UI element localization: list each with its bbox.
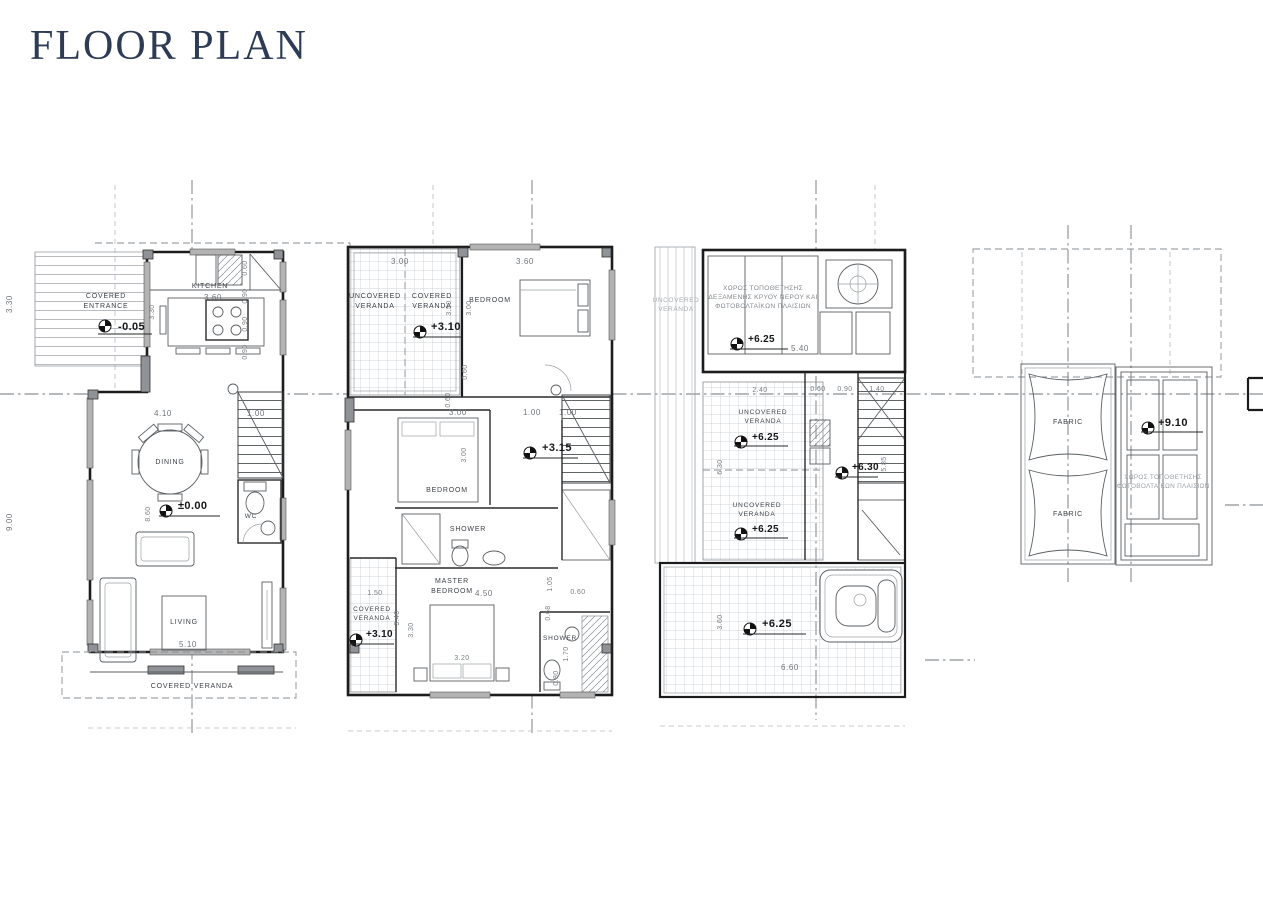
floor-plan-drawing: COVERED ENTRANCE -0.05 KITCHEN 3.60 3.30… [0, 0, 1263, 897]
dim-1-50: 1.50 [367, 590, 382, 597]
level-veranda-top: +3.10 [431, 321, 461, 333]
dim-1-00-a: 1.00 [523, 408, 541, 417]
dim-0-80: 0.80 [553, 670, 560, 685]
dim-0-60-b: 0.60 [445, 392, 452, 407]
label-pv-greek-2: ΦΩΤΟΒΟΛΤΑΪΚΩΝ ΠΛΑΙΣΙΩΝ [1116, 482, 1209, 490]
dim-0-90-p3: 0.90 [837, 386, 852, 393]
level-910-roof: +9.10 [1158, 417, 1188, 429]
room-label-bedroom-mid: BEDROOM [426, 487, 468, 494]
page-title: FLOOR PLAN [30, 22, 308, 70]
dim-3-60: 3.60 [204, 293, 222, 302]
dim-0-60-a: 0.60 [462, 364, 469, 379]
level-entrance: -0.05 [118, 321, 145, 333]
label-pv-greek-1: ΧΩΡΟΣ ΤΟΠΟΘΕΤΗΣΗΣ [1124, 474, 1202, 481]
dim-3-60-p2: 3.60 [516, 257, 534, 266]
dim-3-30-kitchen: 3.30 [149, 304, 156, 319]
roof-terrace [660, 563, 905, 697]
label-covered-veranda-top-1: COVERED [412, 293, 452, 300]
dim-5-85: 5.85 [881, 456, 888, 471]
level-landing-315: +3.15 [542, 442, 572, 454]
veranda-bottom [350, 558, 396, 692]
level-veranda-bottom: +3.10 [366, 629, 393, 640]
dim-3-00-top: 3.00 [391, 257, 409, 266]
label-tank-greek-2: ΔΕΞΑΜΕΝΗΣ ΚΡΥΟΥ ΝΕΡΟΥ ΚΑΙ [708, 294, 817, 301]
room-label-master-2: BEDROOM [431, 588, 473, 595]
level-625-mid1: +6.25 [752, 432, 779, 443]
dim-1-40: 1.40 [869, 386, 884, 393]
label-uncovered-veranda-2: VERANDA [355, 303, 394, 310]
label-veranda-left-2: VERANDA [658, 306, 694, 313]
room-label-kitchen: KITCHEN [192, 283, 228, 290]
lower-roof-strip [655, 247, 695, 563]
label-veranda-mid1-1: UNCOVERED [739, 409, 788, 416]
room-label-wc: WC [245, 513, 257, 520]
dim-3-00-mid: 3.00 [449, 408, 467, 417]
dim-0-90-a: 0.90 [242, 288, 249, 303]
dim-3-50: 3.50 [446, 300, 453, 315]
covered-veranda [62, 652, 296, 698]
dim-0-90-c: 0.90 [242, 344, 249, 359]
dim-0-60-c: 0.60 [570, 589, 585, 596]
dim-1-05: 1.05 [547, 576, 554, 591]
tank-pv-room [703, 250, 905, 372]
dim-5-40: 5.40 [791, 344, 809, 353]
level-625-top: +6.25 [748, 334, 775, 345]
plan-first-floor: UNCOVERED VERANDA COVERED VERANDA +3.10 … [345, 244, 615, 698]
dim-8-60: 8.60 [145, 506, 152, 521]
dim-4-50: 4.50 [475, 589, 493, 598]
level-625-terrace: +6.25 [762, 618, 792, 630]
level-ground: ±0.00 [178, 500, 207, 512]
dim-6-30: 6.30 [717, 459, 724, 474]
dim-3-00-v2: 3.00 [461, 447, 468, 462]
label-covered-veranda-bottom-2: VERANDA [353, 615, 390, 622]
dim-9-00: 9.00 [5, 513, 14, 531]
label-veranda-mid2-1: UNCOVERED [733, 502, 782, 509]
dim-1-00: 1.00 [247, 409, 265, 418]
dim-2-40: 2.40 [752, 387, 767, 394]
plan-pergola-pv: FABRIC FABRIC +9.10 ΧΩΡΟΣ ΤΟΠΟΘΕΤΗΣΗΣ ΦΩ… [973, 249, 1221, 565]
room-label-dining: DINING [155, 459, 184, 466]
label-veranda-mid2-2: VERANDA [738, 511, 775, 518]
label-veranda-mid1-2: VERANDA [744, 418, 781, 425]
label-tank-greek-1: ΧΩΡΟΣ ΤΟΠΟΘΕΤΗΣΗΣ [723, 285, 803, 292]
label-fabric-bottom: FABRIC [1053, 511, 1083, 518]
dim-6-60: 6.60 [781, 663, 799, 672]
plan-roof: UNCOVERED VERANDA ΧΩΡΟΣ ΤΟΠΟΘΕΤΗΣΗΣ ΔΕΞΑ… [653, 247, 905, 697]
dim-0-60: 0.60 [242, 260, 249, 275]
room-label-covered-entrance-2: ENTRANCE [84, 303, 129, 310]
dim-4-10: 4.10 [154, 409, 172, 418]
floor-plan-sheet: FLOOR PLAN [0, 0, 1263, 897]
room-label-covered-veranda: COVERED VERANDA [151, 683, 233, 690]
level-625-mid2: +6.25 [752, 524, 779, 535]
plan-ground-floor: COVERED ENTRANCE -0.05 KITCHEN 3.60 3.30… [5, 243, 350, 698]
dim-3-60-p3: 3.60 [717, 614, 724, 629]
label-tank-greek-3: ΦΩΤΟΒΟΛΤΑΪΚΩΝ ΠΛΑΙΣΙΩΝ [715, 302, 811, 310]
roof-outline-dashed [973, 249, 1221, 377]
dim-3-30-p2: 3.30 [408, 622, 415, 637]
dim-5-10: 5.10 [179, 640, 197, 649]
label-covered-veranda-bottom-1: COVERED [353, 606, 391, 613]
level-630-landing: +6.30 [852, 462, 879, 473]
room-label-shower-mid: SHOWER [450, 526, 486, 533]
dim-0-60-p3: 0.60 [810, 386, 825, 393]
room-label-living: LIVING [170, 619, 198, 626]
dim-3-20: 3.20 [454, 655, 469, 662]
room-label-covered-entrance-1: COVERED [86, 293, 126, 300]
label-fabric-top: FABRIC [1053, 419, 1083, 426]
dim-3-40: 3.40 [394, 610, 401, 625]
room-label-bedroom-top: BEDROOM [469, 297, 511, 304]
dim-0-90-b: 0.90 [242, 316, 249, 331]
room-label-shower-bottom: SHOWER [543, 635, 577, 642]
dim-1-70: 1.70 [563, 646, 570, 661]
dim-1-00-b: 1.00 [559, 408, 577, 417]
dim-0-68: 0.68 [545, 605, 552, 620]
dim-3-30-left: 3.30 [5, 295, 14, 313]
pv-panel-frame [1116, 367, 1212, 565]
label-veranda-left-1: UNCOVERED [653, 297, 700, 304]
room-label-master-1: MASTER [435, 578, 469, 585]
label-uncovered-veranda-1: UNCOVERED [349, 293, 401, 300]
